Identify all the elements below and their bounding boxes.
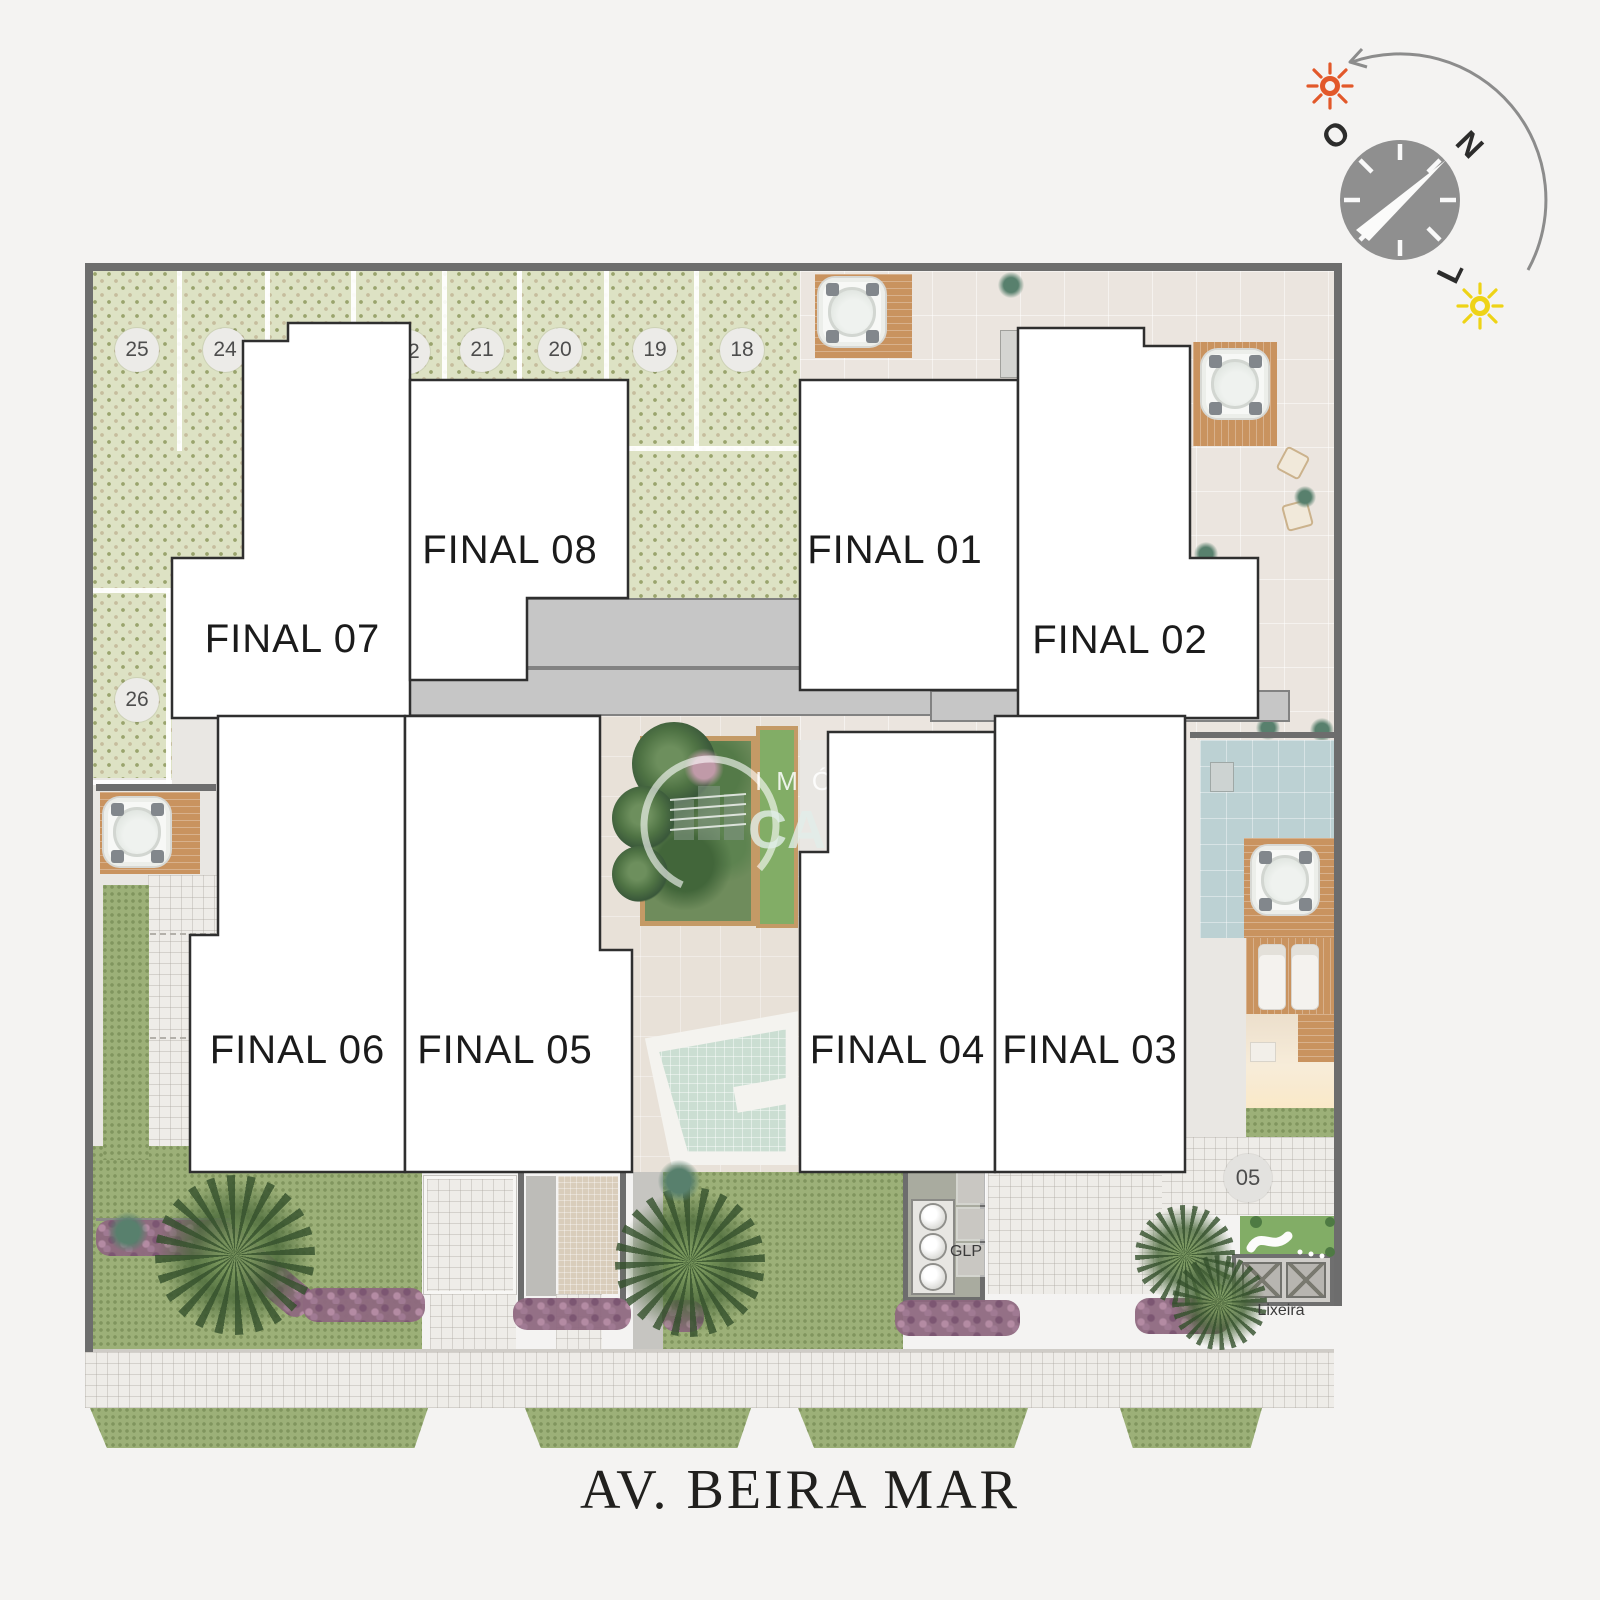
hedge xyxy=(303,1288,425,1322)
jacuzzi-north xyxy=(819,278,885,346)
parking-spot-05: 05 xyxy=(1224,1154,1272,1202)
boundary-wall-east xyxy=(1334,263,1342,1306)
stall-line xyxy=(442,271,447,451)
sun-west-icon xyxy=(1308,64,1352,108)
stall-line xyxy=(265,271,270,451)
service-niche-floor xyxy=(222,916,235,932)
stepping-stone xyxy=(958,1209,984,1239)
stall-line xyxy=(177,271,182,451)
potted-plant xyxy=(1194,542,1218,566)
sun-lounger xyxy=(1291,944,1319,1010)
unit-label-final-04: FINAL 04 xyxy=(800,1028,995,1072)
stall-line xyxy=(351,271,356,451)
watermark: IMÓ CA xyxy=(620,740,1020,920)
parking-spot-25: 25 xyxy=(115,328,159,372)
circulation-core xyxy=(930,690,1290,722)
hedge xyxy=(513,1298,631,1330)
stall-line xyxy=(166,588,171,785)
street-green-strip xyxy=(525,1408,751,1448)
compass-letter-east: L xyxy=(1429,255,1470,288)
stall-line xyxy=(92,588,172,593)
gas-cylinder xyxy=(921,1205,945,1229)
trash-bin xyxy=(1286,1262,1326,1298)
sidewalk xyxy=(85,1352,1334,1408)
compass-needle xyxy=(1356,160,1446,241)
shrub xyxy=(108,1212,148,1252)
grass-strip-east xyxy=(1246,1108,1334,1138)
street-green-strip xyxy=(1120,1408,1262,1448)
parking-spot-22: 22 xyxy=(386,330,430,374)
street-green-strip xyxy=(90,1408,428,1448)
hedge xyxy=(895,1300,1020,1336)
compass-letter-west: O xyxy=(1315,113,1357,157)
parking-spot-19: 19 xyxy=(633,328,677,372)
parking-spot-20: 20 xyxy=(538,328,582,372)
parking-spot-18: 18 xyxy=(720,328,764,372)
palm-tree xyxy=(155,1175,315,1335)
gas-cylinder xyxy=(921,1265,945,1289)
unit-label-final-05: FINAL 05 xyxy=(405,1028,605,1072)
wall xyxy=(96,784,216,791)
stall-line xyxy=(604,271,609,451)
potted-plant xyxy=(998,272,1024,298)
paved-strip-west xyxy=(148,875,218,1160)
parking-spot-21: 21 xyxy=(460,328,504,372)
watermark-text-top: IMÓ xyxy=(755,766,846,796)
wall xyxy=(518,1172,524,1302)
sun-lounger xyxy=(1258,944,1286,1010)
sun-east-icon xyxy=(1458,284,1502,328)
unit-label-final-07: FINAL 07 xyxy=(175,617,410,661)
unit-label-final-01: FINAL 01 xyxy=(795,528,995,572)
shrub xyxy=(658,1160,700,1202)
palm-tree xyxy=(615,1187,765,1337)
ramp-gray xyxy=(526,1176,556,1296)
bench-towel xyxy=(1250,1042,1276,1062)
potted-plant xyxy=(1310,718,1334,742)
stall-line xyxy=(517,271,522,451)
street-green-strip xyxy=(798,1408,1028,1448)
shower-box xyxy=(1210,762,1234,792)
jacuzzi-spa xyxy=(1252,846,1318,914)
utility-box xyxy=(1000,330,1024,378)
paving-mark xyxy=(150,933,216,935)
pool-water xyxy=(598,948,802,1174)
stall-line xyxy=(420,446,800,451)
jacuzzi-east xyxy=(1202,350,1268,418)
circulation-core xyxy=(520,598,812,668)
ramp-paved xyxy=(558,1176,618,1294)
driveway-pad xyxy=(424,1176,516,1294)
lit-terrace-wood xyxy=(1298,1014,1334,1062)
watermark-text-bottom: CA xyxy=(748,800,826,860)
orientation-arrow-icon xyxy=(1350,49,1546,270)
unit-label-final-02: FINAL 02 xyxy=(1010,618,1230,662)
compass-icon xyxy=(1340,140,1460,260)
site-plan: Lixeira GLP xyxy=(0,0,1600,1600)
walkway xyxy=(430,1294,516,1352)
parking-spot-26: 26 xyxy=(115,678,159,722)
street-name: AV. BEIRA MAR xyxy=(0,1458,1600,1522)
compass-letter-north: N xyxy=(1449,124,1491,166)
trash-label: Lixeira xyxy=(1228,1302,1334,1320)
unit-label-final-03: FINAL 03 xyxy=(995,1028,1185,1072)
paved-pad-glp xyxy=(988,1164,1162,1294)
unit-label-final-06: FINAL 06 xyxy=(190,1028,405,1072)
pool-area xyxy=(598,948,802,1174)
gas-cylinder xyxy=(921,1235,945,1259)
jacuzzi-west xyxy=(104,798,170,866)
grass-strip-west xyxy=(103,885,149,1160)
wall xyxy=(1190,732,1334,738)
parking-spot-24: 24 xyxy=(203,328,247,372)
stepping-stone xyxy=(958,1173,984,1203)
potted-plant xyxy=(1294,486,1316,508)
gas-label: GLP xyxy=(948,1243,984,1261)
unit-label-final-08: FINAL 08 xyxy=(405,528,615,572)
gas-enclosure xyxy=(903,1160,985,1302)
boundary-wall-north xyxy=(85,263,1334,271)
stall-line xyxy=(694,271,699,451)
boundary-wall-west xyxy=(85,263,93,1352)
sidewalk-edge xyxy=(85,1349,1334,1352)
